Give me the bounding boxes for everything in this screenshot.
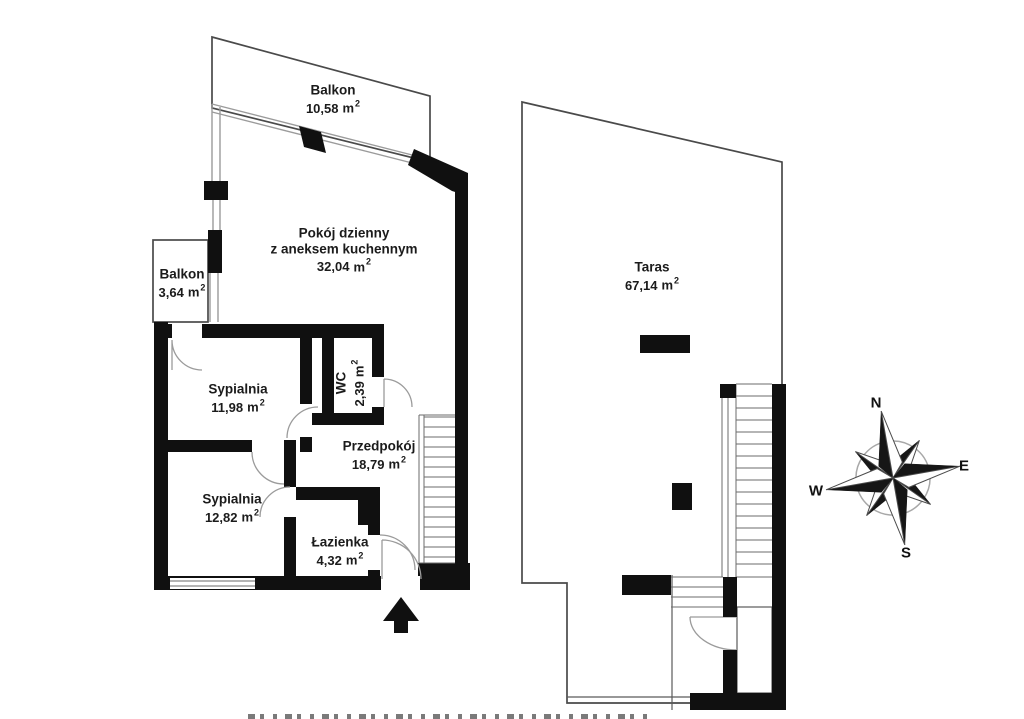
compass-south-label: S xyxy=(901,545,911,562)
room-name: WC xyxy=(333,360,349,407)
room-name: Sypialnia xyxy=(208,381,267,397)
cutoff-caption-strip xyxy=(248,714,650,719)
window-west-upper xyxy=(212,104,220,182)
terrace-outline xyxy=(522,102,782,703)
room-area: 32,04m2 xyxy=(270,258,417,274)
room-label-lazienka: Łazienka 4,32m2 xyxy=(311,534,368,567)
room-area: 4,32m2 xyxy=(311,551,368,567)
room-area: 3,64m2 xyxy=(159,283,206,299)
room-name: Przedpokój xyxy=(343,438,416,454)
room-name: Sypialnia xyxy=(202,491,261,507)
room-name: Taras xyxy=(625,259,679,275)
floor-plan-page: Balkon 10,58m2 Pokój dzienny z aneksem k… xyxy=(0,0,1024,719)
room-label-sypialnia-1: Sypialnia 11,98m2 xyxy=(208,381,267,414)
room-name: Balkon xyxy=(306,82,360,98)
room-label-pokoj-dzienny: Pokój dzienny z aneksem kuchennym 32,04m… xyxy=(270,226,417,275)
room-label-taras: Taras 67,14m2 xyxy=(625,259,679,292)
terrace-plan xyxy=(522,102,786,710)
room-label-przedpokoj: Przedpokój 18,79m2 xyxy=(343,438,416,471)
room-name-line2: z aneksem kuchennym xyxy=(270,241,417,257)
room-label-balkon-left: Balkon 3,64m2 xyxy=(159,266,206,299)
apartment-staircase xyxy=(419,415,455,563)
compass-north-label: N xyxy=(871,395,882,412)
compass-east-label: E xyxy=(959,458,969,475)
window-balcony-left-access xyxy=(210,273,218,322)
room-label-wc: WC 2,39m2 xyxy=(333,360,366,407)
room-area: 2,39m2 xyxy=(350,360,366,407)
compass-west-label: W xyxy=(809,483,823,500)
room-name: Łazienka xyxy=(311,534,368,550)
room-label-sypialnia-2: Sypialnia 12,82m2 xyxy=(202,491,261,524)
room-area: 11,98m2 xyxy=(208,398,267,414)
compass-rose xyxy=(814,399,972,557)
room-area: 12,82m2 xyxy=(202,508,261,524)
bottom-window-opening xyxy=(170,578,255,589)
room-name: Balkon xyxy=(159,266,206,282)
room-area: 10,58m2 xyxy=(306,99,360,115)
room-area: 67,14m2 xyxy=(625,276,679,292)
room-area: 18,79m2 xyxy=(343,455,416,471)
room-label-balkon-top: Balkon 10,58m2 xyxy=(306,82,360,115)
room-name: Pokój dzienny xyxy=(270,226,417,242)
entrance-arrow xyxy=(383,597,419,633)
floor-plan-drawing xyxy=(0,0,1024,719)
entrance-opening xyxy=(381,576,420,590)
